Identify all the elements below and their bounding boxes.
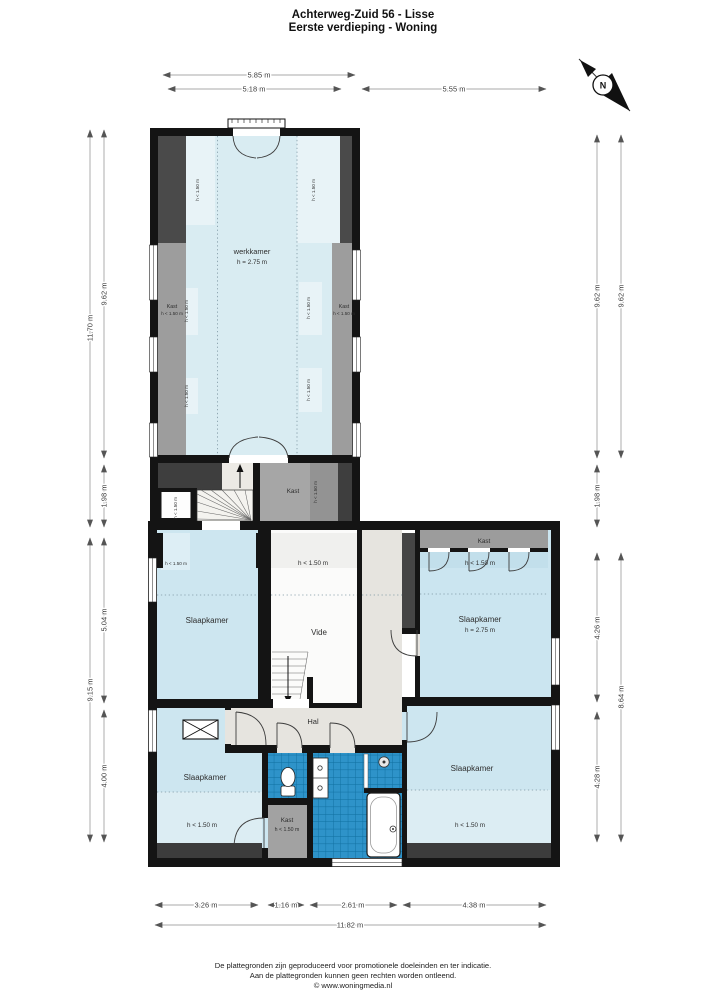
door-opening	[225, 710, 231, 744]
dim-label: 11.82 m	[337, 921, 364, 930]
window	[149, 558, 157, 602]
dim-left-lower-outer: 9.15 m	[86, 538, 95, 842]
dim-right-lower-inner-b: 4.28 m	[593, 712, 602, 842]
dim-left-lower-inner-a: 5.04 m	[100, 538, 109, 703]
room-label-hal: Hal	[307, 717, 319, 726]
dim-top-left: 5.18 m	[168, 85, 341, 94]
door-opening	[330, 745, 355, 753]
dim-label: 5.18 m	[243, 85, 266, 94]
door-opening	[402, 712, 407, 740]
window	[552, 705, 560, 750]
window	[353, 337, 361, 372]
floorplan-page: Achterweg-Zuid 56 - Lisse Eerste verdiep…	[0, 0, 707, 1000]
door-opening	[468, 548, 490, 552]
wall	[148, 699, 273, 708]
dim-left-upper-outer: 11.70 m	[86, 130, 95, 527]
underroof-dark-zone	[158, 136, 186, 243]
lowheight-label: h < 1.50 m	[173, 497, 178, 519]
compass-rose: N	[579, 59, 630, 111]
compass-north-label: N	[600, 81, 607, 91]
plan-title: Achterweg-Zuid 56 - Lisse Eerste verdiep…	[289, 9, 438, 34]
door-opening	[229, 455, 288, 463]
roof-window-icon	[183, 720, 218, 739]
wall	[402, 697, 551, 706]
connector-zone	[158, 463, 352, 521]
room-label-vide: Vide	[311, 628, 327, 637]
dim-right-lower-outer: 8.64 m	[617, 553, 626, 842]
wall	[225, 745, 407, 753]
underroof-dark-zone	[338, 463, 352, 521]
window	[150, 423, 158, 457]
dim-top-right: 5.55 m	[362, 85, 546, 94]
wall	[307, 753, 313, 858]
footer-disclaimer: De plattegronden zijn geproduceerd voor …	[215, 961, 492, 990]
dim-top-outer: 5.85 m	[163, 71, 355, 80]
window	[353, 250, 361, 300]
window	[332, 859, 402, 867]
wall	[352, 136, 360, 521]
room-label-werkkamer: werkkamer	[233, 247, 271, 256]
underroof-dark-zone	[158, 463, 222, 490]
lowheight-label: h < 1.50 m	[306, 379, 311, 401]
lowheight-zone	[157, 792, 262, 843]
window	[149, 710, 157, 752]
dim-label: 1.98 m	[100, 485, 109, 508]
lower-block-rooms	[157, 530, 551, 858]
lowheight-label: h < 1.50 m	[313, 481, 318, 503]
door-opening	[508, 548, 530, 552]
lowheight-label: h < 1.50 m	[298, 560, 328, 567]
wall	[309, 703, 362, 708]
window	[150, 245, 158, 300]
lowheight-label: h < 1.50 m	[311, 179, 316, 201]
dim-left-mid: 1.98 m	[100, 465, 109, 527]
dim-right-mid: 1.98 m	[593, 465, 602, 527]
door-opening	[262, 818, 268, 848]
dim-label: 8.64 m	[617, 686, 626, 709]
entry-sill	[228, 119, 285, 128]
underroof-dark-zone	[407, 843, 551, 858]
window	[353, 423, 361, 457]
underroof-dark-zone	[402, 533, 415, 630]
underroof-dark-zone	[340, 136, 352, 243]
wall	[415, 530, 420, 697]
room-label-slaapkamer-bl: Slaapkamer	[184, 773, 227, 782]
wall	[258, 530, 271, 703]
dim-label: 5.55 m	[443, 85, 466, 94]
dim-label: 1.98 m	[593, 485, 602, 508]
kast-left-zone	[158, 243, 186, 455]
window	[150, 337, 158, 372]
dim-bottom-d: 4.38 m	[403, 901, 546, 910]
dim-label: 9.62 m	[100, 283, 109, 306]
wall	[268, 798, 307, 805]
window	[552, 638, 560, 685]
door-opening	[428, 548, 450, 552]
lowheight-zone	[297, 136, 340, 243]
dim-label: 4.00 m	[100, 765, 109, 788]
room-label-slaapkamer-br: Slaapkamer	[451, 764, 494, 773]
wall	[253, 463, 260, 521]
dim-label: 5.85 m	[248, 71, 271, 80]
room-height-label: h = 2.75 m	[237, 259, 267, 266]
lowheight-label: h < 1.50 m	[184, 385, 189, 407]
title-line2: Eerste verdieping - Woning	[289, 22, 438, 34]
dim-label: 2.61 m	[342, 901, 365, 910]
lowheight-label: h < 1.50 m	[187, 822, 217, 829]
wall-stub	[157, 533, 163, 568]
lowheight-label: h < 1.50 m	[455, 822, 485, 829]
lowheight-label: h < 1.50 m	[465, 560, 495, 567]
dim-label: 4.38 m	[463, 901, 486, 910]
room-label-kast-connector: Kast	[287, 488, 300, 495]
lowheight-label: h < 1.50 m	[161, 311, 183, 316]
dim-right-upper-outer: 9.62 m	[617, 135, 626, 458]
dim-bottom-c: 2.61 m	[310, 901, 397, 910]
lowheight-label: h < 1.50 m	[184, 300, 189, 322]
footer-line3: © www.woningmedia.nl	[314, 981, 393, 990]
stair-landing	[222, 463, 253, 490]
toilet-icon	[281, 768, 295, 797]
dim-label: 11.70 m	[86, 315, 95, 342]
underroof-dark-zone	[157, 843, 262, 858]
wall	[357, 530, 362, 708]
dim-label: 9.15 m	[86, 679, 95, 702]
dim-bottom-b: 1.16 m	[268, 901, 304, 910]
door-opening	[277, 745, 302, 753]
dim-bottom-total: 11.82 m	[155, 921, 546, 930]
lowheight-label: h < 1.50 m	[195, 179, 200, 201]
dim-label: 9.62 m	[593, 285, 602, 308]
stair-opening	[273, 699, 309, 708]
stair-opening	[202, 521, 240, 530]
room-label-kast-right: Kast	[339, 304, 350, 310]
room-label-kast-topright: Kast	[478, 538, 491, 545]
dim-left-upper-inner: 9.62 m	[100, 130, 109, 458]
dim-label: 9.62 m	[617, 285, 626, 308]
dim-label: 1.16 m	[275, 901, 298, 910]
lowheight-label: h < 1.50 m	[306, 297, 311, 319]
dim-left-lower-inner-b: 4.00 m	[100, 710, 109, 842]
room-height-label: h = 2.75 m	[465, 627, 495, 634]
room-label-kast-bottom: Kast	[281, 817, 294, 824]
lowheight-zone	[186, 136, 215, 225]
lowheight-label: h < 1.50 m	[275, 827, 300, 833]
wall	[364, 788, 404, 793]
dim-bottom-a: 3.26 m	[155, 901, 258, 910]
kast-right-zone	[332, 243, 352, 455]
room-label-kast-left: Kast	[167, 304, 178, 310]
wall	[150, 136, 158, 521]
lowheight-label: h < 1.50 m	[165, 561, 187, 566]
dim-label: 5.04 m	[100, 609, 109, 632]
wall	[551, 530, 560, 867]
dim-right-upper-inner: 9.62 m	[593, 135, 602, 458]
footer-line1: De plattegronden zijn geproduceerd voor …	[215, 961, 492, 970]
dim-label: 4.28 m	[593, 766, 602, 789]
dim-label: 3.26 m	[195, 901, 218, 910]
dim-label: 4.26 m	[593, 617, 602, 640]
room-label-slaapkamer-tr: Slaapkamer	[459, 615, 502, 624]
washbasin-icon	[313, 758, 328, 798]
bathtub-icon	[367, 793, 400, 857]
kast-room	[260, 463, 310, 521]
room-label-slaapkamer-tl: Slaapkamer	[186, 616, 229, 625]
lowheight-zone	[407, 790, 551, 843]
dim-right-lower-inner-a: 4.26 m	[593, 553, 602, 702]
title-line1: Achterweg-Zuid 56 - Lisse	[292, 9, 435, 21]
footer-line2: Aan de plattegronden kunnen geen rechten…	[250, 971, 456, 980]
door-opening	[233, 128, 280, 136]
lowheight-label: h < 1.50 m	[333, 311, 355, 316]
